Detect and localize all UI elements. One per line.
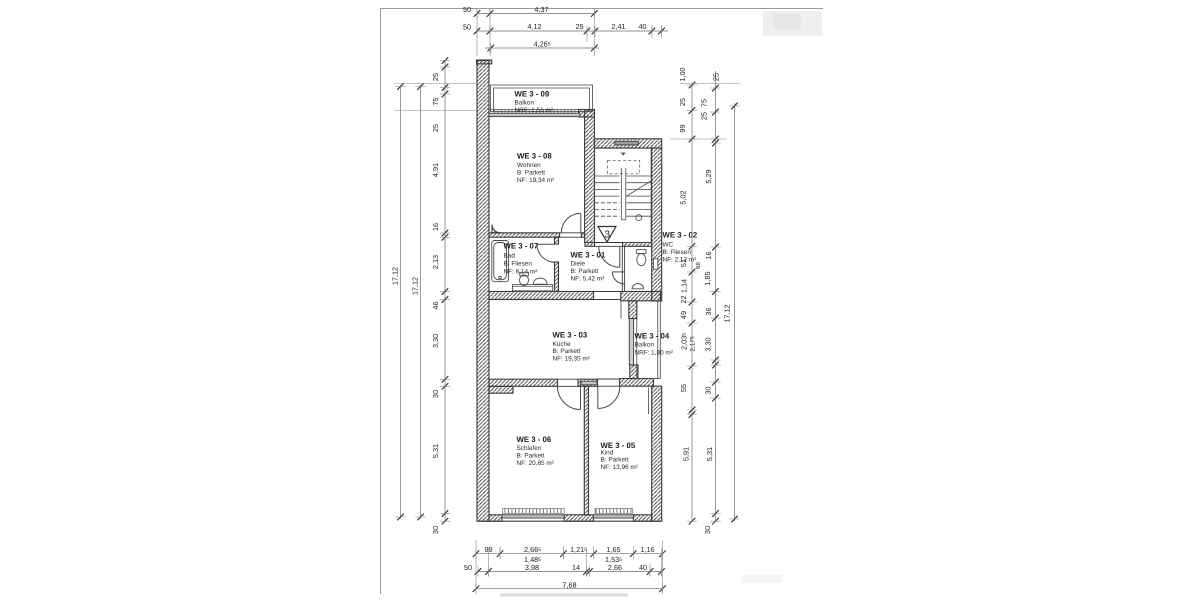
svg-text:WE 3 - 08: WE 3 - 08 <box>517 152 552 161</box>
svg-text:WC: WC <box>663 242 674 249</box>
svg-text:WE 3 - 04: WE 3 - 04 <box>635 332 670 341</box>
svg-text:36: 36 <box>704 307 713 315</box>
svg-text:3,30: 3,30 <box>431 334 440 348</box>
svg-text:7,68: 7,68 <box>562 580 576 589</box>
svg-text:Schlafen: Schlafen <box>517 445 542 452</box>
svg-text:30: 30 <box>431 390 440 398</box>
svg-text:5,31: 5,31 <box>431 444 440 458</box>
svg-text:3,98: 3,98 <box>525 563 539 572</box>
svg-text:2,13: 2,13 <box>431 255 440 269</box>
svg-text:NRF: 1,80 m²: NRF: 1,80 m² <box>635 350 673 357</box>
svg-text:17,12: 17,12 <box>411 277 420 295</box>
svg-text:99: 99 <box>678 124 687 132</box>
svg-text:25: 25 <box>712 73 721 81</box>
svg-text:5,02: 5,02 <box>679 190 688 204</box>
svg-text:2,41: 2,41 <box>611 22 625 31</box>
svg-text:Bad: Bad <box>504 253 516 260</box>
svg-text:5,91: 5,91 <box>682 447 691 461</box>
svg-text:B: Parkett: B: Parkett <box>517 170 545 177</box>
svg-text:B: Parkett: B: Parkett <box>571 268 599 275</box>
svg-text:5,29: 5,29 <box>704 169 713 183</box>
svg-text:Diele: Diele <box>571 260 586 267</box>
svg-text:14: 14 <box>572 563 580 572</box>
svg-text:17,12: 17,12 <box>391 267 400 285</box>
svg-text:16: 16 <box>704 251 713 259</box>
svg-text:NRF: 1,51 m²: NRF: 1,51 m² <box>515 107 553 114</box>
svg-text:4,12: 4,12 <box>527 22 541 31</box>
svg-text:3: 3 <box>605 230 611 241</box>
svg-text:WE 3 - 09: WE 3 - 09 <box>515 90 550 99</box>
svg-text:WE 3 - 07: WE 3 - 07 <box>504 242 539 251</box>
svg-text:2,66: 2,66 <box>608 563 622 572</box>
svg-text:Balkon: Balkon <box>515 100 535 107</box>
svg-text:1,14: 1,14 <box>680 279 689 293</box>
svg-text:25: 25 <box>678 98 687 106</box>
svg-text:NF: 19,34 m²: NF: 19,34 m² <box>517 177 554 184</box>
svg-text:30: 30 <box>703 526 712 534</box>
svg-text:25: 25 <box>431 124 440 132</box>
svg-text:1,16: 1,16 <box>640 545 654 554</box>
svg-text:Wohnen: Wohnen <box>517 162 541 169</box>
svg-text:NF: 6,14 m²: NF: 6,14 m² <box>504 269 538 276</box>
svg-text:WE 3 - 06: WE 3 - 06 <box>517 435 552 444</box>
svg-text:NF: 19,35 m²: NF: 19,35 m² <box>553 356 590 363</box>
svg-text:B: Parkett: B: Parkett <box>517 453 545 460</box>
svg-text:B: Fliesen: B: Fliesen <box>663 249 692 256</box>
svg-text:NF: 20,85 m²: NF: 20,85 m² <box>517 460 554 467</box>
svg-text:46: 46 <box>431 301 440 309</box>
svg-text:5,31: 5,31 <box>705 447 714 461</box>
svg-text:Kind: Kind <box>601 450 614 457</box>
svg-text:NF: 13,96 m²: NF: 13,96 m² <box>601 464 638 471</box>
svg-text:B: Fliesen: B: Fliesen <box>504 261 533 268</box>
svg-text:B: Parkett: B: Parkett <box>553 348 581 355</box>
svg-text:WE 3 - 01: WE 3 - 01 <box>571 251 606 260</box>
svg-text:16: 16 <box>431 223 440 231</box>
svg-text:WE 3 - 03: WE 3 - 03 <box>553 331 588 340</box>
svg-text:4,91: 4,91 <box>431 163 440 177</box>
svg-text:68: 68 <box>695 262 702 269</box>
svg-text:Balkon: Balkon <box>635 342 655 349</box>
svg-text:B: Parkett: B: Parkett <box>601 457 629 464</box>
svg-text:50: 50 <box>463 23 471 32</box>
svg-text:55: 55 <box>679 384 688 392</box>
svg-text:30: 30 <box>704 386 713 394</box>
svg-text:NF: 5,42 m²: NF: 5,42 m² <box>571 276 605 283</box>
svg-text:WE 3 - 02: WE 3 - 02 <box>663 231 698 240</box>
svg-text:17,12: 17,12 <box>723 304 732 322</box>
svg-text:75: 75 <box>700 99 709 107</box>
svg-text:50: 50 <box>464 563 472 572</box>
svg-text:22: 22 <box>679 295 688 303</box>
svg-text:4,37: 4,37 <box>534 5 548 14</box>
svg-text:49: 49 <box>679 311 688 319</box>
svg-text:25: 25 <box>431 73 440 81</box>
svg-text:51: 51 <box>679 259 688 267</box>
svg-text:25: 25 <box>575 22 583 31</box>
svg-text:1,85: 1,85 <box>703 271 712 285</box>
svg-text:3,30: 3,30 <box>704 337 713 351</box>
svg-text:1,00: 1,00 <box>678 67 687 81</box>
svg-text:30: 30 <box>431 526 440 534</box>
svg-text:75: 75 <box>431 97 440 105</box>
svg-text:40: 40 <box>639 563 647 572</box>
svg-text:Küche: Küche <box>553 341 572 348</box>
svg-text:50: 50 <box>463 5 471 14</box>
svg-text:40: 40 <box>638 22 646 31</box>
svg-text:25: 25 <box>700 112 709 120</box>
svg-text:1,65: 1,65 <box>606 545 620 554</box>
